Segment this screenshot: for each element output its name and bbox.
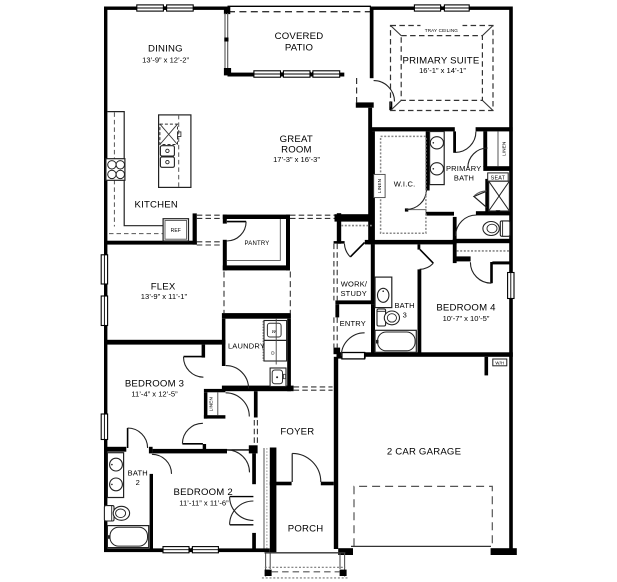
svg-text:11’-11” x 11’-6”: 11’-11” x 11’-6” [179,498,229,507]
svg-text:11’-4” x 12’-5”: 11’-4” x 12’-5” [131,390,178,399]
svg-text:LINEN: LINEN [209,397,214,411]
svg-text:PRIMARY SUITE: PRIMARY SUITE [403,56,480,67]
svg-text:KITCHEN: KITCHEN [135,200,179,211]
svg-text:WORK/: WORK/ [341,280,368,289]
svg-text:BATH: BATH [394,301,414,310]
svg-text:2: 2 [136,478,140,487]
svg-text:ENTRY: ENTRY [340,319,366,328]
svg-text:PATIO: PATIO [285,43,313,54]
svg-text:DINING: DINING [148,44,183,55]
svg-text:17’-3” x 16’-3”: 17’-3” x 16’-3” [273,155,320,164]
svg-text:2 CAR GARAGE: 2 CAR GARAGE [387,447,461,458]
svg-text:BEDROOM 3: BEDROOM 3 [125,378,184,389]
svg-text:GREAT: GREAT [280,134,313,145]
svg-text:PRIMARY: PRIMARY [446,164,481,173]
svg-text:16’-1” x 14’-1”: 16’-1” x 14’-1” [419,66,466,75]
svg-text:13’-9” x 12’-2”: 13’-9” x 12’-2” [142,55,189,64]
svg-text:BATH: BATH [128,468,148,477]
svg-text:W: W [272,329,277,334]
svg-text:W/H: W/H [495,360,504,365]
svg-text:STUDY: STUDY [340,289,366,298]
svg-text:W.I.C.: W.I.C. [394,179,416,188]
svg-text:3: 3 [403,311,407,320]
svg-text:BATH: BATH [454,174,474,183]
svg-text:LINEN: LINEN [502,142,507,156]
svg-text:BEDROOM 2: BEDROOM 2 [174,487,233,498]
svg-text:PANTRY: PANTRY [245,241,270,247]
svg-text:REF: REF [171,228,181,234]
svg-text:LAUNDRY: LAUNDRY [228,342,265,351]
svg-text:PORCH: PORCH [288,524,324,535]
svg-text:10’-7” x 10’-5”: 10’-7” x 10’-5” [443,314,490,323]
svg-text:TRAY CEILING: TRAY CEILING [425,28,459,33]
svg-text:13’-9” x 11’-1”: 13’-9” x 11’-1” [141,292,188,301]
svg-text:LINEN: LINEN [377,179,382,193]
svg-text:D: D [271,351,275,356]
svg-text:COVERED: COVERED [275,31,324,42]
svg-text:FOYER: FOYER [280,427,314,438]
svg-text:BEDROOM 4: BEDROOM 4 [436,303,496,314]
